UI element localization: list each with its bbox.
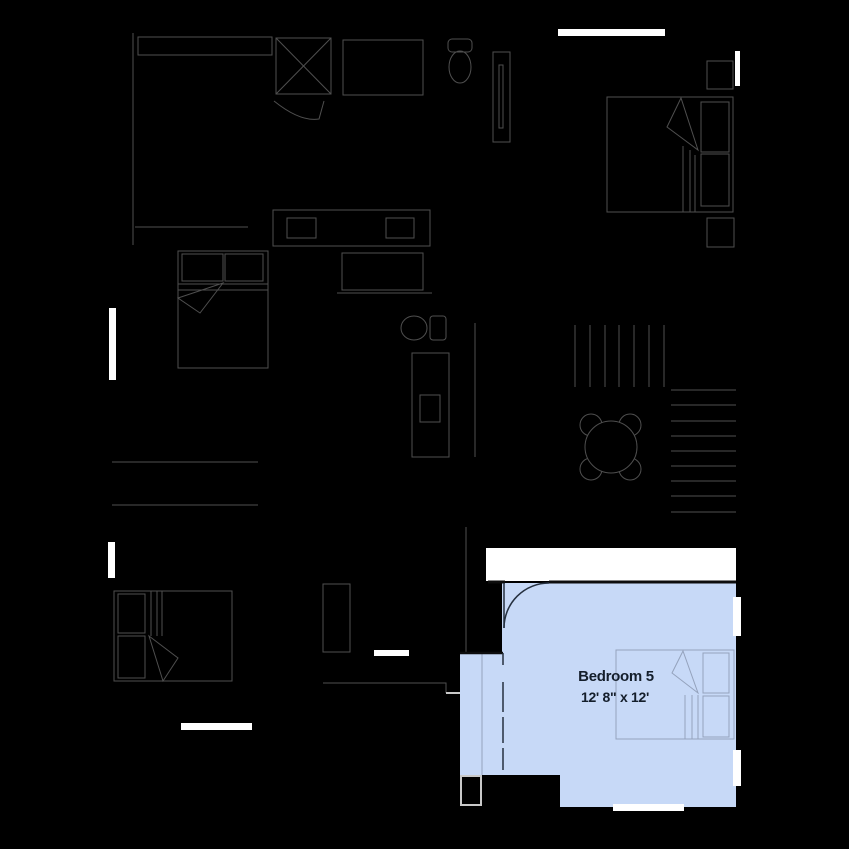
bathroom-door-arc [274, 101, 324, 119]
kitchen-counter [273, 210, 430, 246]
vanity [412, 353, 449, 457]
kitchen-island [337, 253, 432, 293]
window-right-top [735, 51, 740, 86]
bathtub [343, 40, 423, 95]
dining-set [580, 414, 641, 480]
storage-room [323, 584, 350, 652]
shower [276, 38, 331, 94]
window-left-upper [109, 308, 116, 380]
bed-bottom-left [114, 591, 232, 681]
toilet-top [448, 39, 472, 83]
bedroom-5: Bedroom 5 12' 8" x 12' [460, 548, 741, 811]
floorplan-canvas: Bedroom 5 12' 8" x 12' [0, 0, 849, 849]
nightstand-2 [707, 218, 734, 247]
window-top [558, 29, 665, 36]
nightstand-1 [707, 61, 733, 89]
stairs-lower [671, 390, 736, 512]
bedroom-5-window-right-2 [733, 750, 741, 786]
bed-middle-left [178, 251, 268, 368]
linen-cabinet [493, 52, 510, 142]
closet-top-left [138, 37, 272, 55]
bedroom-5-label: Bedroom 5 [578, 668, 654, 685]
floorplan-svg: Bedroom 5 12' 8" x 12' [0, 0, 849, 849]
window-left-lower [108, 542, 115, 578]
stairs-upper [575, 325, 664, 387]
bedroom-5-dimensions: 12' 8" x 12' [581, 689, 649, 705]
window-bottom-left [181, 723, 252, 730]
bedroom-5-wall-nook [461, 776, 481, 805]
hall-wall [323, 683, 446, 693]
bedroom-5-window-right-1 [733, 597, 741, 636]
toilet-middle [401, 316, 446, 340]
bedroom-5-top-wall-band [486, 548, 736, 581]
window-center [374, 650, 409, 656]
bed-top-right [607, 97, 733, 212]
bedroom-5-window-bottom [613, 804, 684, 811]
